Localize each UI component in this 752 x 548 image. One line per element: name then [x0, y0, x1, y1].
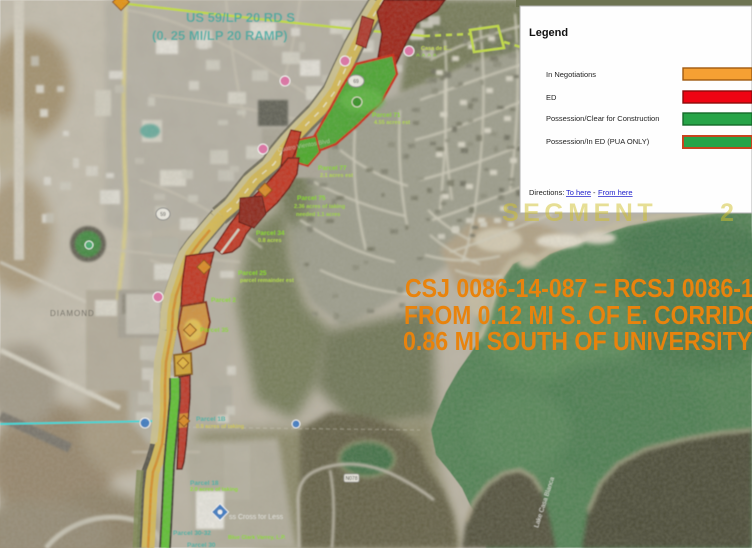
- svg-text:Directions:: Directions:: [529, 188, 564, 197]
- svg-text:From here: From here: [598, 188, 633, 197]
- svg-text:Legend: Legend: [529, 27, 568, 39]
- svg-text:2: 2: [720, 199, 734, 227]
- svg-text:To here: To here: [566, 188, 591, 197]
- svg-text:ED: ED: [546, 93, 557, 102]
- svg-text:SEGMENT: SEGMENT: [502, 199, 657, 227]
- svg-text:Possession/In ED (PUA ONLY): Possession/In ED (PUA ONLY): [546, 137, 650, 146]
- svg-text:In Negotiations: In Negotiations: [546, 70, 596, 79]
- svg-text:0.86 MI SOUTH OF UNIVERSITY B: 0.86 MI SOUTH OF UNIVERSITY B: [403, 326, 752, 356]
- svg-text:Possession/Clear for Construct: Possession/Clear for Construction: [546, 114, 659, 123]
- svg-text:CSJ 0086-14-087 = RCSJ 0086-14: CSJ 0086-14-087 = RCSJ 0086-14-08: [405, 273, 752, 303]
